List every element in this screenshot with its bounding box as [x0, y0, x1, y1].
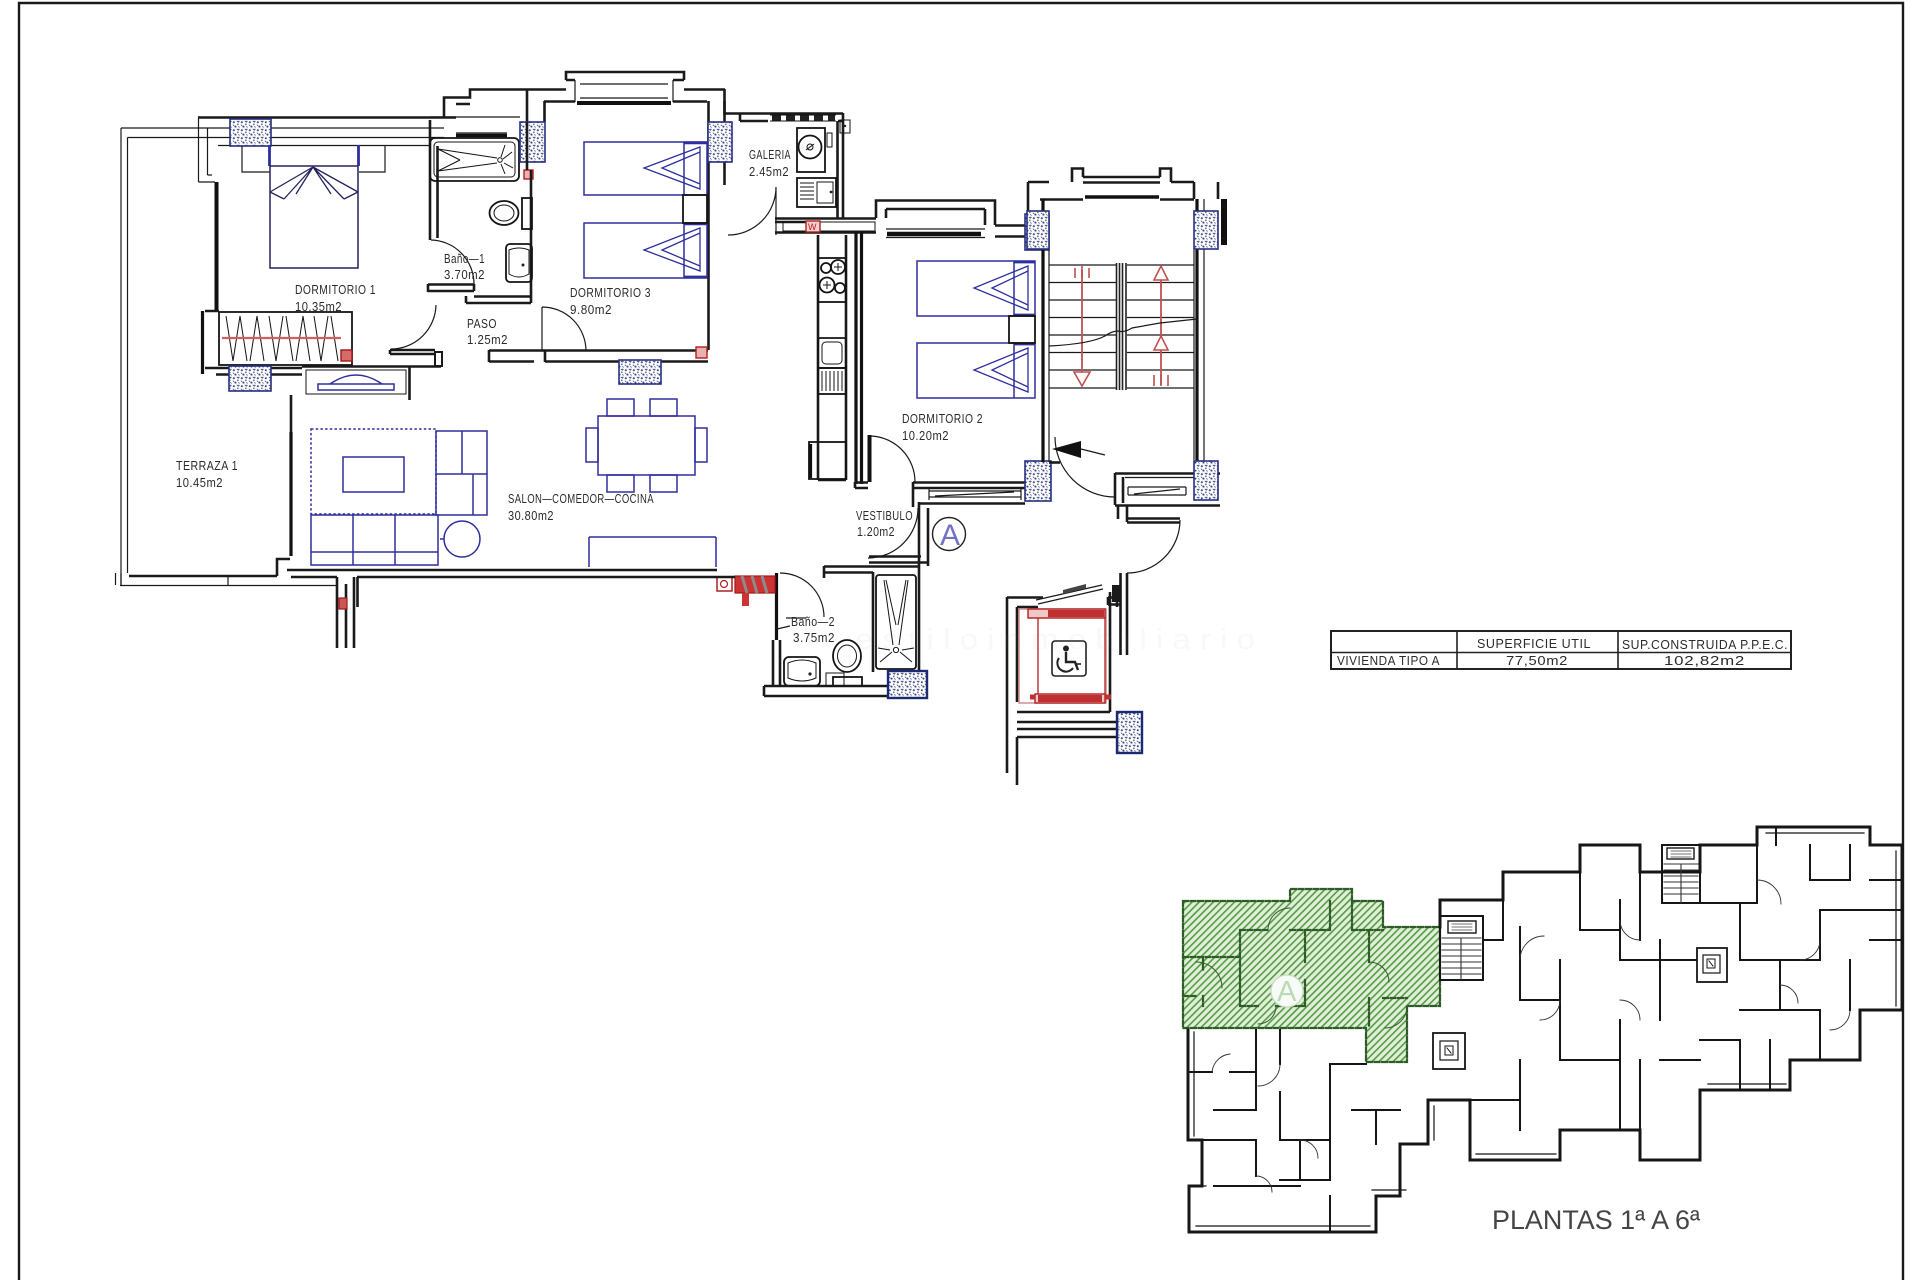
svg-text:PASO: PASO: [467, 317, 497, 331]
svg-text:e s t i l o i n m o b i l i a: e s t i l o i n m o b i l i a r i o: [855, 624, 1255, 656]
svg-text:TERRAZA 1: TERRAZA 1: [176, 459, 238, 473]
svg-text:30.80m2: 30.80m2: [508, 509, 554, 523]
svg-text:A: A: [1277, 976, 1297, 1008]
svg-text:SUPERFICIE UTIL: SUPERFICIE UTIL: [1477, 637, 1591, 651]
svg-text:SALON—COMEDOR—COCINA: SALON—COMEDOR—COCINA: [508, 492, 654, 506]
svg-text:PLANTAS 1ª A 6ª: PLANTAS 1ª A 6ª: [1492, 1205, 1701, 1235]
svg-text:2.45m2: 2.45m2: [749, 165, 789, 179]
svg-text:Baño—2: Baño—2: [791, 615, 835, 629]
svg-text:VESTIBULO: VESTIBULO: [856, 509, 913, 523]
svg-text:1.25m2: 1.25m2: [467, 333, 508, 347]
svg-text:Baño—1: Baño—1: [444, 252, 485, 266]
svg-text:1.20m2: 1.20m2: [857, 525, 895, 539]
svg-text:A: A: [940, 519, 960, 552]
svg-text:DORMITORIO 1: DORMITORIO 1: [295, 283, 376, 297]
svg-text:10.20m2: 10.20m2: [902, 429, 949, 443]
svg-text:SUP.CONSTRUIDA P.P.E.C.: SUP.CONSTRUIDA P.P.E.C.: [1622, 638, 1788, 652]
svg-text:GALERIA: GALERIA: [749, 148, 791, 162]
svg-text:3.70m2: 3.70m2: [444, 268, 485, 282]
svg-text:DORMITORIO 3: DORMITORIO 3: [570, 286, 651, 300]
svg-text:3.75m2: 3.75m2: [793, 631, 835, 645]
svg-text:10.35m2: 10.35m2: [295, 300, 342, 314]
svg-text:9.80m2: 9.80m2: [570, 303, 612, 317]
svg-text:DORMITORIO 2: DORMITORIO 2: [902, 412, 983, 426]
svg-text:VIVIENDA TIPO A: VIVIENDA TIPO A: [1337, 654, 1440, 668]
svg-text:77,50m2: 77,50m2: [1506, 654, 1568, 668]
svg-text:W: W: [808, 222, 817, 232]
svg-text:102,82m2: 102,82m2: [1664, 654, 1745, 668]
svg-text:10.45m2: 10.45m2: [176, 476, 223, 490]
